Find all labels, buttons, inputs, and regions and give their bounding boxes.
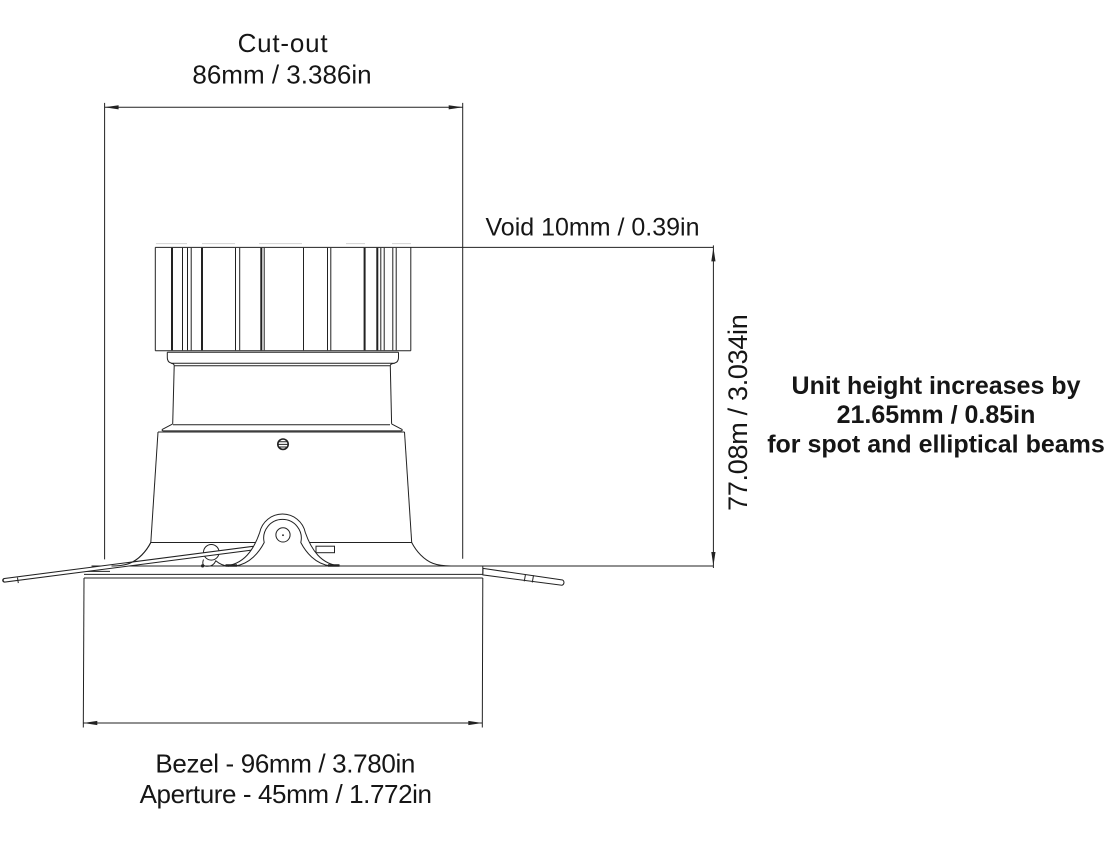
- svg-text:86mm / 3.386in: 86mm / 3.386in: [192, 60, 371, 90]
- svg-text:Aperture - 45mm / 1.772in: Aperture - 45mm / 1.772in: [140, 779, 432, 809]
- svg-text:Bezel - 96mm / 3.780in: Bezel - 96mm / 3.780in: [155, 749, 415, 779]
- svg-text:77.08m / 3.034in: 77.08m / 3.034in: [723, 315, 753, 511]
- svg-text:Unit height increases by: Unit height increases by: [792, 372, 1081, 400]
- svg-text:21.65mm / 0.85in: 21.65mm / 0.85in: [837, 401, 1036, 429]
- svg-text:for spot and elliptical beams: for spot and elliptical beams: [767, 430, 1105, 458]
- svg-text:Cut-out: Cut-out: [238, 28, 329, 58]
- svg-text:Void 10mm / 0.39in: Void 10mm / 0.39in: [486, 214, 700, 242]
